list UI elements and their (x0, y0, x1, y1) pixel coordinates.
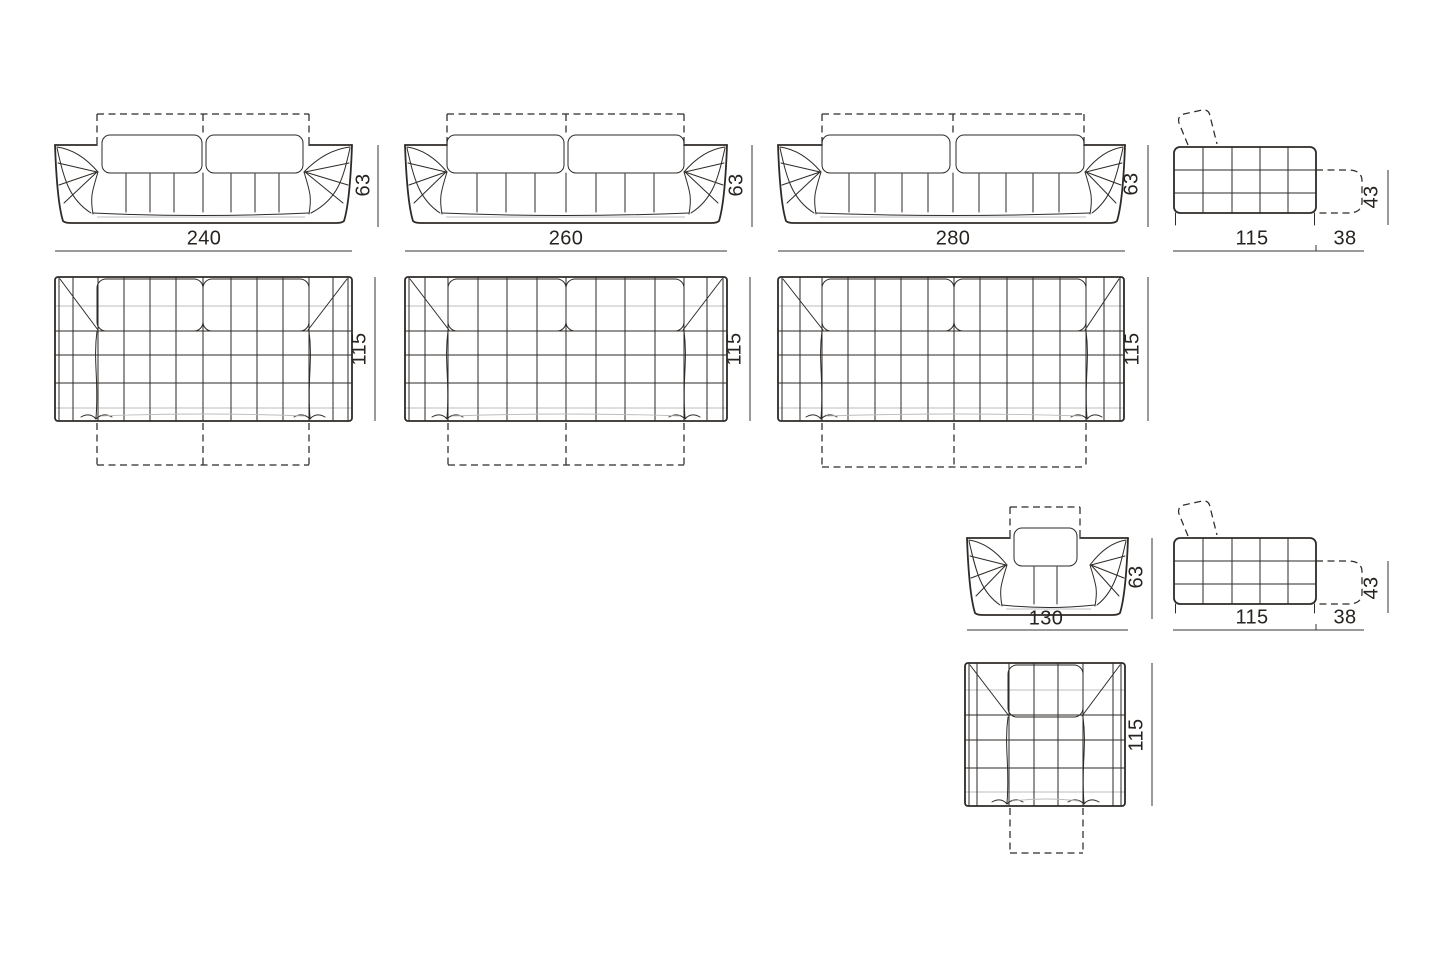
armchair-130-plan-view (965, 663, 1152, 853)
sofa-side-extension-height-dimension: 43 (1361, 185, 1384, 208)
armchair-side-extension-dimension: 38 (1333, 607, 1356, 630)
sofa-240-depth-dimension: 115 (349, 332, 372, 365)
sofa-280-width-dimension: 280 (936, 228, 971, 251)
sofa-260-plan-view (405, 277, 750, 465)
sofa-240-width-dimension: 240 (187, 228, 222, 251)
sofa-260-width-dimension: 260 (549, 228, 584, 251)
armchair-height-dimension: 63 (1126, 565, 1149, 588)
armchair-side-extension-height-dimension: 43 (1361, 576, 1384, 599)
sofa-240-plan-view (55, 277, 375, 465)
sofa-280-height-dimension: 63 (1121, 172, 1144, 195)
armchair-width-dimension: 130 (1029, 608, 1064, 631)
sofa-240-height-dimension: 63 (353, 173, 376, 196)
armchair-side-depth-dimension: 115 (1235, 607, 1268, 630)
sofa-260-height-dimension: 63 (726, 173, 749, 196)
sofa-280-depth-dimension: 115 (1122, 332, 1145, 365)
sofa-280-plan-view (778, 277, 1148, 467)
sofa-side-extension-dimension: 38 (1333, 228, 1356, 251)
sofa-side-depth-dimension: 115 (1235, 228, 1268, 251)
technical-line-drawing (0, 0, 1445, 969)
furniture-dimension-sheet: { "page": { "background_color": "#ffffff… (0, 0, 1445, 969)
armchair-depth-dimension: 115 (1126, 718, 1149, 751)
sofa-260-depth-dimension: 115 (724, 332, 747, 365)
